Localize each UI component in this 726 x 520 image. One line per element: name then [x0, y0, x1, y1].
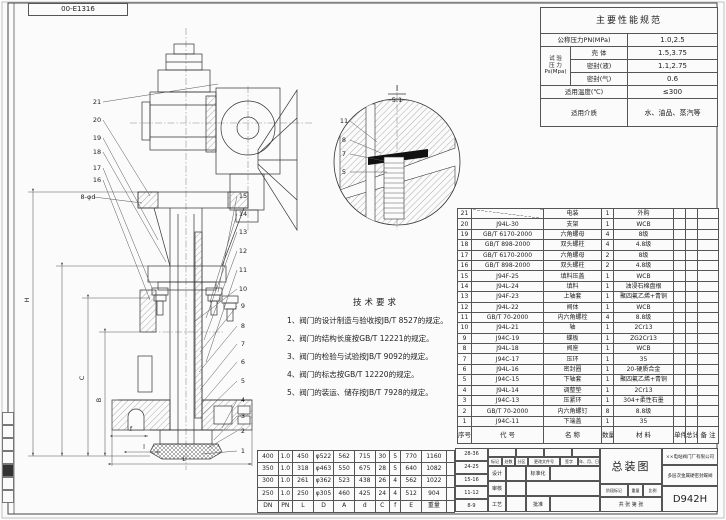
cell: J94F-25	[472, 271, 544, 281]
cell: 1082	[421, 463, 446, 475]
cell: 318	[293, 463, 314, 475]
callout-label: 15	[239, 192, 247, 200]
cell: 7	[458, 354, 472, 364]
cell: GB/T 6170-2000	[472, 250, 544, 260]
spec-test-pressure-label: 试 验 压 力 Ps(Mpa)	[541, 47, 571, 86]
cell: 双头螺柱	[544, 260, 602, 270]
cell: 2Cr13	[614, 323, 674, 333]
table-row: 14J94L-24填料1油浸石棉盘根	[458, 281, 719, 291]
cell: φ362	[313, 475, 334, 487]
process-label: 工艺	[488, 496, 506, 512]
scale-label: 比例	[643, 484, 662, 497]
cell: 1	[602, 209, 614, 219]
cell: 备 注	[698, 427, 719, 444]
dimension-label: B	[95, 398, 103, 402]
spec-shell-value: 1.5,3.75	[628, 47, 718, 60]
cell: 11	[458, 312, 472, 322]
callout-label: 8-φd	[81, 193, 96, 201]
cell: 400	[258, 451, 279, 463]
callout-label: 11	[340, 117, 348, 125]
callout-label: 18	[93, 148, 101, 156]
cell: 261	[293, 475, 314, 487]
cell: 562	[401, 475, 422, 487]
cell: 4.8级	[614, 260, 674, 270]
cell: WCB	[614, 219, 674, 229]
cell: 4	[602, 240, 614, 250]
cell: 1	[602, 271, 614, 281]
rev-cell	[572, 448, 600, 457]
cell	[674, 219, 686, 229]
table-row: 1J94C-11下端盖135	[458, 416, 719, 426]
cell: 序号	[458, 427, 472, 444]
callout-label: 5	[241, 377, 245, 385]
cell: 压紧环	[544, 396, 602, 406]
cell: WCB	[614, 271, 674, 281]
spec-media-label: 适用介质	[541, 99, 628, 127]
cell: 名 称	[544, 427, 602, 444]
cell: 350	[258, 463, 279, 475]
cell: 8.8级	[614, 406, 674, 416]
cell: 密封圈	[544, 364, 602, 374]
drawing-sheet: I 5:1 2120191817168-φd151413121110987654…	[0, 0, 726, 520]
cell: 1	[602, 323, 614, 333]
cell: 油浸石棉盘根	[614, 281, 674, 291]
sheet-count: 共 张 第 张	[600, 497, 662, 512]
table-row: 16GB/T 898-2000双头螺柱24.8级	[458, 260, 719, 270]
cell	[686, 375, 698, 385]
cell: 下端盖	[544, 416, 602, 426]
cell: 8级	[614, 250, 674, 260]
cell	[686, 385, 698, 395]
cell	[686, 302, 698, 312]
cell: 1	[602, 416, 614, 426]
binding-mark	[2, 451, 14, 464]
main-view	[112, 44, 297, 459]
cell: 250	[258, 488, 279, 500]
cell: 8	[458, 344, 472, 354]
company-name: ××电站阀门厂有限公司	[662, 448, 718, 465]
cell	[698, 416, 719, 426]
cell: 1	[602, 375, 614, 385]
cell	[686, 209, 698, 219]
technical-requirements-title: 技术要求	[287, 296, 465, 308]
cell: 24	[375, 488, 389, 500]
cell	[698, 385, 719, 395]
zone-row: 15-16	[455, 474, 488, 487]
dimension-label: C	[78, 375, 86, 380]
cell	[698, 250, 719, 260]
table-row: 11GB/T 70-2000内六角螺栓48.8级	[458, 312, 719, 322]
cell: 六角螺母	[544, 250, 602, 260]
callout-label: 8	[241, 322, 245, 330]
cell: 2	[602, 250, 614, 260]
cell	[698, 229, 719, 239]
callout-label: 12	[239, 247, 247, 255]
cell: 12	[458, 302, 472, 312]
table-row: 3501.0318φ4635506752856401082	[258, 463, 455, 475]
cell: 1	[602, 219, 614, 229]
cell	[686, 406, 698, 416]
spec-seal-liquid-value: 1.1,2.75	[628, 60, 718, 73]
callout-label: 2	[241, 427, 245, 435]
spec-title: 主要性能规范	[541, 8, 718, 34]
cell: f	[390, 500, 401, 512]
callout-leader	[199, 326, 237, 372]
binding-mark	[2, 425, 14, 438]
callout-leader	[103, 120, 150, 196]
callout-label: 19	[93, 134, 101, 142]
cell: ZG2Cr13	[614, 333, 674, 343]
cell	[674, 271, 686, 281]
cell	[686, 364, 698, 374]
cell	[686, 396, 698, 406]
binding-mark	[2, 412, 14, 425]
drawing-title: 总装图	[600, 448, 662, 484]
callout-label: 6	[241, 358, 245, 366]
cell: 内六角螺钉	[544, 406, 602, 416]
cell: 2	[458, 406, 472, 416]
rev-date-label: 年、月、日	[578, 457, 600, 466]
callout-label: 14	[239, 210, 247, 218]
cell: 1	[602, 281, 614, 291]
cell: DN	[258, 500, 279, 512]
binding-mark	[2, 490, 14, 503]
cell: A	[334, 500, 355, 512]
cell: 6	[458, 364, 472, 374]
cell: 填料	[544, 281, 602, 291]
cell: 35	[614, 416, 674, 426]
dimension-table: 4001.0450φ52256271530577011603501.0318φ4…	[257, 450, 455, 513]
cell: 1	[602, 302, 614, 312]
cell: E	[401, 500, 422, 512]
standardization-signature	[550, 466, 600, 481]
spec-seal-gas-label: 密封(气)	[571, 73, 628, 86]
cell	[674, 302, 686, 312]
title-block: 28-36 24-25 15-16 11-12 8-9 标记 处数 分区 更改文…	[455, 448, 718, 512]
cell: 425	[354, 488, 375, 500]
cell	[698, 344, 719, 354]
rev-doc-label: 更改文件号	[528, 457, 560, 466]
cell: 电装	[544, 209, 602, 219]
cell: 640	[401, 463, 422, 475]
table-row: 3J94C-13压紧环1304+柔性石墨	[458, 396, 719, 406]
rev-count-label: 处数	[502, 457, 515, 466]
cell: 外购	[614, 209, 674, 219]
cell: 562	[334, 451, 355, 463]
cell: J94C-11	[472, 416, 544, 426]
callout-label: 1	[241, 447, 245, 455]
process-signature	[506, 496, 526, 512]
rev-zone-label: 分区	[515, 457, 528, 466]
parts-list-table: 21电装1外购20J94L-30支架1WCB19GB/T 6170-2000六角…	[457, 208, 719, 444]
cell: 460	[334, 488, 355, 500]
cell	[674, 240, 686, 250]
cell: 26	[375, 475, 389, 487]
cell: L	[293, 500, 314, 512]
cell: 内六角螺栓	[544, 312, 602, 322]
cell	[674, 375, 686, 385]
cell: 1.0	[278, 463, 292, 475]
cell	[698, 364, 719, 374]
cell: 1	[602, 364, 614, 374]
callout-leader	[218, 196, 237, 292]
callout-label: 4	[241, 396, 245, 404]
stage-mark-label: 阶段标记	[600, 484, 628, 497]
spec-table: 主要性能规范 公称压力PN(MPa) 1.0,2.5 试 验 压 力 Ps(Mp…	[540, 7, 718, 127]
cell: 250	[293, 488, 314, 500]
cell: 压环	[544, 354, 602, 364]
cell: 30	[375, 451, 389, 463]
callout-leader	[200, 344, 237, 390]
binding-mark	[2, 477, 14, 490]
zone-row: 24-25	[455, 461, 488, 474]
dimension-label: l	[143, 443, 145, 451]
table-row: 2501.0250φ305460425244512904	[258, 488, 455, 500]
cell: 2Cr13	[614, 385, 674, 395]
cell: φ463	[313, 463, 334, 475]
binding-mark	[2, 438, 14, 451]
cell: GB/T 70-2000	[472, 406, 544, 416]
cell: 总计	[686, 427, 698, 444]
table-row: 8J94L-18阀座1WCB	[458, 344, 719, 354]
cell: 1	[602, 396, 614, 406]
cell	[674, 292, 686, 302]
cell: 支架	[544, 219, 602, 229]
cell: 9	[458, 333, 472, 343]
cell	[698, 312, 719, 322]
cell	[674, 209, 686, 219]
dimension-label: H	[23, 297, 31, 302]
cell: 770	[401, 451, 422, 463]
callout-label: 21	[93, 98, 101, 106]
cell: J94L-14	[472, 385, 544, 395]
table-row: 5J94C-15下轴套1聚四氟乙烯+青铜	[458, 375, 719, 385]
cell: d	[354, 500, 375, 512]
callout-label: 3	[241, 412, 245, 420]
table-row: 7J94C-17压环135	[458, 354, 719, 364]
cell: 3	[458, 396, 472, 406]
table-row: 15J94F-25填料压盖1WCB	[458, 271, 719, 281]
cell: 聚四氟乙烯+青铜	[614, 292, 674, 302]
rev-sign-label: 签字	[560, 457, 578, 466]
cell: 304+柔性石墨	[614, 396, 674, 406]
cell: WCB	[614, 344, 674, 354]
cell: 523	[334, 475, 355, 487]
cell: 14	[458, 281, 472, 291]
cell: 4	[602, 229, 614, 239]
cell: 代 号	[472, 427, 544, 444]
cell: J94L-24	[472, 281, 544, 291]
cell	[698, 219, 719, 229]
cell	[446, 463, 454, 475]
zone-row: 11-12	[455, 486, 488, 499]
technical-requirements: 技术要求 1、阀门的设计制造与验收按JB/T 8527的规定。 2、阀门的结构长…	[287, 296, 465, 405]
spec-seal-gas-value: 0.6	[628, 73, 718, 86]
table-row: 12J94L-22阀体1WCB	[458, 302, 719, 312]
cell	[674, 312, 686, 322]
cell: 18	[458, 240, 472, 250]
cell: 5	[390, 463, 401, 475]
callout-leader	[208, 431, 237, 448]
table-row: 9J94C-19蝶板1ZG2Cr13	[458, 333, 719, 343]
callout-leader	[201, 362, 237, 404]
cell: 17	[458, 250, 472, 260]
rev-mark-label: 标记	[488, 457, 502, 466]
cell: 512	[401, 488, 422, 500]
table-row: 4J94L-14调整垫12Cr13	[458, 385, 719, 395]
check-extra	[526, 481, 600, 496]
cell	[698, 333, 719, 343]
cell: 填料压盖	[544, 271, 602, 281]
spec-pn-value: 1.0,2.5	[628, 34, 718, 47]
cell: 450	[293, 451, 314, 463]
callout-label: 7	[342, 150, 346, 158]
cell: J94C-17	[472, 354, 544, 364]
rev-cell	[516, 448, 544, 457]
table-row: 18GB/T 898-2000双头螺柱44.8级	[458, 240, 719, 250]
cell: 19	[458, 229, 472, 239]
cell: J94F-23	[472, 292, 544, 302]
table-row: 20J94L-30支架1WCB	[458, 219, 719, 229]
cell: C	[375, 500, 389, 512]
check-signature	[506, 481, 526, 496]
cell: 轴	[544, 323, 602, 333]
cell	[446, 488, 454, 500]
cell: 21	[458, 209, 472, 219]
cell: 35	[614, 354, 674, 364]
callout-label: 8	[342, 136, 346, 144]
spec-seal-liquid-label: 密封(液)	[571, 60, 628, 73]
cell: 1	[602, 292, 614, 302]
approve-label: 批准	[526, 496, 550, 512]
zone-row: 28-36	[455, 448, 488, 461]
cell	[698, 209, 719, 219]
cell	[686, 281, 698, 291]
cell	[674, 406, 686, 416]
table-row: 19GB/T 6170-2000六角螺母48级	[458, 229, 719, 239]
design-label: 设计	[488, 466, 506, 481]
cell: 28	[375, 463, 389, 475]
cell	[472, 209, 544, 219]
cell	[698, 406, 719, 416]
cell: J94L-16	[472, 364, 544, 374]
cell: 聚四氟乙烯+青铜	[614, 375, 674, 385]
table-row: 4001.0450φ5225627153057701160	[258, 451, 455, 463]
cell: 4	[390, 488, 401, 500]
cell	[686, 323, 698, 333]
cell: 阀体	[544, 302, 602, 312]
corner-drawing-number: 00-E1316	[28, 3, 128, 16]
cell: J94L-30	[472, 219, 544, 229]
callout-leader	[103, 84, 218, 102]
cell	[698, 292, 719, 302]
cell: GB/T 70-2000	[472, 312, 544, 322]
cell	[698, 281, 719, 291]
cell	[674, 385, 686, 395]
cell: 20-硬质合金	[614, 364, 674, 374]
cell: 1	[602, 385, 614, 395]
weight-label: 重量	[628, 484, 643, 497]
binding-mark	[2, 464, 14, 477]
table-row: 3001.0261φ3625234382645621022	[258, 475, 455, 487]
cell: 550	[334, 463, 355, 475]
cell	[686, 354, 698, 364]
table-row: 17GB/T 6170-2000六角螺母28级	[458, 250, 719, 260]
cell: 1.0	[278, 451, 292, 463]
cell	[674, 323, 686, 333]
callout-label: 13	[239, 228, 247, 236]
cell: 1022	[421, 475, 446, 487]
cell: J94C-19	[472, 333, 544, 343]
table-row: 序号代 号名 称数量材 料单件总计备 注	[458, 427, 719, 444]
requirement-item: 1、阀门的设计制造与验收按JB/T 8527的规定。	[287, 315, 465, 326]
cell: 4	[458, 385, 472, 395]
cell	[674, 229, 686, 239]
dim-label-layer: HCBflL	[23, 297, 186, 463]
cell	[674, 281, 686, 291]
spec-media-value: 水、油品、蒸汽等	[628, 99, 718, 127]
spec-temp-value: ≤300	[628, 86, 718, 99]
cell: 重量	[421, 500, 446, 512]
cell: 阀座	[544, 344, 602, 354]
cell	[674, 364, 686, 374]
cell: GB/T 898-2000	[472, 240, 544, 250]
cell: PN	[278, 500, 292, 512]
cell: 4	[390, 475, 401, 487]
cell	[686, 250, 698, 260]
cell: 5	[390, 451, 401, 463]
cell: 下轴套	[544, 375, 602, 385]
cell: GB/T 898-2000	[472, 260, 544, 270]
cell: 5	[458, 375, 472, 385]
cell: φ522	[313, 451, 334, 463]
callout-label: 20	[93, 116, 101, 124]
cell: 调整垫	[544, 385, 602, 395]
cell: 20	[458, 219, 472, 229]
callout-leader	[94, 197, 142, 203]
cell: J94L-21	[472, 323, 544, 333]
detail-view-label: I	[396, 84, 398, 93]
approve-signature	[550, 496, 600, 512]
cell: 300	[258, 475, 279, 487]
dimension-label: L	[182, 455, 186, 463]
cell	[698, 323, 719, 333]
callout-leader	[206, 270, 237, 362]
table-row: 2GB/T 70-2000内六角螺钉88.8级	[458, 406, 719, 416]
cell: 8	[602, 406, 614, 416]
cell	[686, 416, 698, 426]
cell: 715	[354, 451, 375, 463]
cell: 1160	[421, 451, 446, 463]
detail-view: I 5:1	[334, 84, 460, 226]
cell: 1	[458, 416, 472, 426]
cell: 16	[458, 260, 472, 270]
table-row: 10J94L-21轴12Cr13	[458, 323, 719, 333]
cell: J94L-18	[472, 344, 544, 354]
cell: 10	[458, 323, 472, 333]
cell	[686, 219, 698, 229]
cell	[446, 475, 454, 487]
cell	[698, 260, 719, 270]
detail-scale-label: 5:1	[392, 96, 402, 104]
cell: 4	[602, 312, 614, 322]
requirement-item: 2、阀门的结构长度按GB/T 12221的规定。	[287, 333, 465, 344]
cell: 8级	[614, 229, 674, 239]
callout-label: 5	[342, 168, 346, 176]
cell: 材 料	[614, 427, 674, 444]
cell	[698, 302, 719, 312]
cell	[674, 396, 686, 406]
